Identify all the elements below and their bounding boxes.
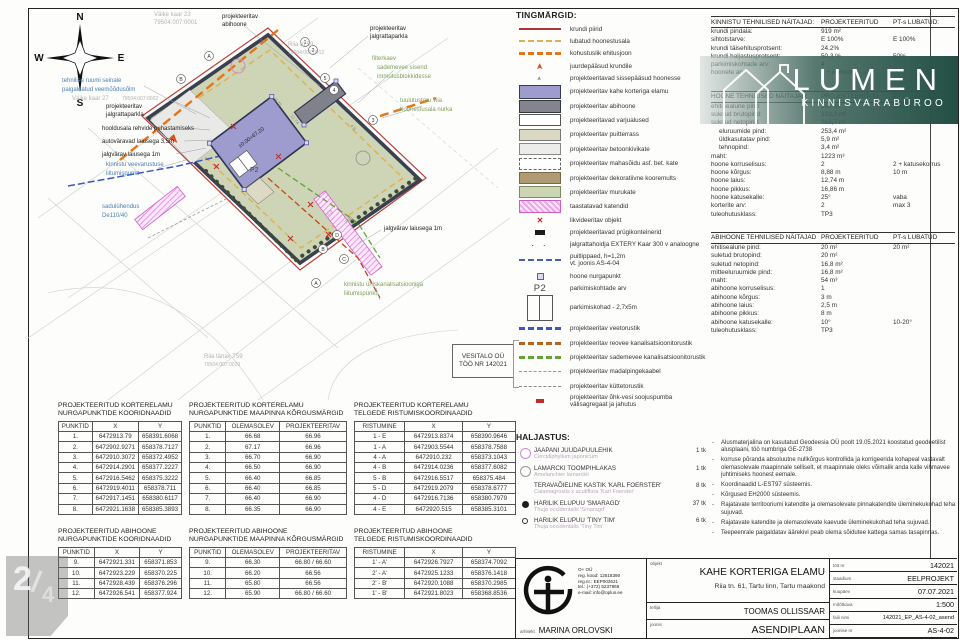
compass-icon: N E S W bbox=[34, 12, 124, 109]
table-row: maht: 1223 m³ bbox=[711, 153, 955, 161]
lumen-watermark: LUMEN KINNISVARABÜROO bbox=[700, 56, 958, 124]
callout-vent-pipe: tuulutustoru viia bbox=[400, 98, 443, 104]
legend-title: TINGMÄRGID: bbox=[516, 10, 708, 20]
legend-item: projekteeritav puitterrass bbox=[516, 128, 708, 142]
legend-item-label: lubatud hoonestusala bbox=[570, 38, 630, 45]
legend-item: projekteeritav abihoone bbox=[516, 99, 708, 113]
table-row: 5 - B6472916.5517658375.484 bbox=[355, 473, 516, 483]
legend-swatch-icon bbox=[516, 259, 564, 261]
legend-item-label: projekteeritav küttetorustik bbox=[570, 383, 644, 390]
plant-count: 1 tk bbox=[678, 447, 706, 460]
table-row: krundi täisehitusprotsent: 24.2% bbox=[711, 45, 955, 53]
table-row: 1.6472913.79658391.6068 bbox=[59, 431, 182, 441]
meta-label: staadium bbox=[833, 576, 851, 581]
callout-sewer-connection: kinnistu ühiskanalisatsiooniga bbox=[344, 282, 424, 288]
meta-value: AS-4-02 bbox=[853, 626, 954, 635]
legend-swatch-icon bbox=[516, 100, 564, 113]
meta-row: faili nimi 142021_EP_AS-4-02_asend bbox=[830, 612, 957, 625]
table-row: tuleohutusklass: TP3 bbox=[711, 211, 955, 219]
legend-swatch-icon: P2 bbox=[516, 283, 564, 294]
meta-row: mõõtkava 1:500 bbox=[830, 599, 957, 612]
table-row: suletud brutopind: 20 m² bbox=[711, 252, 955, 260]
cadastre-label: 79504:007:0002 bbox=[122, 96, 158, 102]
legend-swatch-icon bbox=[516, 240, 564, 250]
legend-swatch-icon bbox=[516, 143, 564, 155]
cadastre-label: Riia tn 59 bbox=[288, 42, 314, 48]
plant-count: 8 tk bbox=[678, 482, 706, 495]
meta-label: kuupäev bbox=[833, 589, 850, 594]
coordinate-tables: PROJEKTEERITUD KORTERELAMUNURGAPUNKTIDE … bbox=[58, 402, 516, 599]
meta-label: faili nimi bbox=[833, 615, 849, 620]
table-row: abihoone laius: 2,5 m bbox=[711, 302, 955, 310]
table-row: 1 - E6472913.8374658390.9646 bbox=[355, 431, 516, 441]
table-row: 8.6472921.1638658385.3893 bbox=[59, 504, 182, 514]
legend-item: projekteeritavad varjualused bbox=[516, 113, 708, 127]
callout-water-connection: liitumispunkt bbox=[106, 171, 139, 177]
legend-item-label: projekteeritav sademevee kanalisatsiooni… bbox=[570, 354, 705, 361]
object-name: KAHE KORTERIGA ELAMU bbox=[700, 567, 825, 578]
legend-item-label: projekteeritavad sissepääsud hoonesse bbox=[570, 75, 681, 82]
table-row: 12.65.9066.80 / 66.60 bbox=[190, 589, 347, 599]
legend-swatch-icon bbox=[516, 85, 564, 99]
table-row: abihoone katusekalle: 10° 10-20° bbox=[711, 319, 955, 327]
parking-count-label: P2 bbox=[250, 167, 259, 174]
table-row: 9.6472921.331658371.853 bbox=[59, 557, 182, 567]
object-address: Riia tn. 61, Tartu linn, Tartu maakond bbox=[715, 583, 825, 590]
table-row: 3.6472910.3072658372.4952 bbox=[59, 452, 182, 462]
table-row: tuleohutusklass: TP3 bbox=[711, 327, 955, 335]
legend-swatch-icon bbox=[516, 399, 564, 403]
legend-swatch-icon bbox=[516, 356, 564, 359]
cadastre-label: 79504:007:0029 bbox=[204, 362, 240, 368]
plant-symbol-icon bbox=[516, 465, 534, 478]
legend-swatch-icon bbox=[516, 371, 564, 372]
legend-item-label: parkimiskohad - 2,7x5m bbox=[570, 304, 637, 311]
table-row: 1' - A'6472926.7927658374.7092 bbox=[355, 557, 516, 567]
table-row: sihtotstarve: E 100% E 100% bbox=[711, 36, 955, 44]
legend-swatch-icon bbox=[516, 129, 564, 141]
cadastre-label: Väike kaar 23 bbox=[154, 12, 191, 18]
legend-swatch-icon bbox=[516, 216, 564, 225]
plant-symbol-icon bbox=[516, 482, 534, 495]
legend-item-label: jalgrattahoidja EXTERY Kaar 300 v analoo… bbox=[570, 241, 699, 248]
legend-item-label: projekteeritav reovee kanalisatsioonitor… bbox=[570, 340, 692, 347]
legend-swatch-icon bbox=[516, 230, 564, 235]
legend-item-label: projekteeritav mahasõidu asf. bet. kate bbox=[570, 160, 678, 167]
legend-item-label: puitlippaed, h=1,2mvt. joonis AS-4-04 bbox=[570, 253, 625, 267]
plant-symbol-icon bbox=[516, 447, 534, 460]
outbuilding-axis-intersections-table: PROJEKTEERITUD ABIHOONETELGEDE RISTUMISK… bbox=[354, 528, 516, 599]
legend-item: projekteeritav murukate bbox=[516, 185, 708, 199]
table-row: 7.6472917.1451658380.6117 bbox=[59, 494, 182, 504]
client-label: tellija bbox=[650, 605, 660, 610]
legend-item-label: krundi piirid bbox=[570, 26, 602, 33]
table-row: 4 - A6472910.232658373.1043 bbox=[355, 452, 516, 462]
table-row: 2.67.1766.96 bbox=[190, 442, 347, 452]
legend-item: jalgrattahoidja EXTERY Kaar 300 v analoo… bbox=[516, 239, 708, 251]
callout-water-meter: tehnilise ruumi seinale bbox=[62, 78, 122, 84]
col-allowed: PT-s LUBATUD: bbox=[893, 19, 955, 26]
legend-swatch-icon bbox=[516, 186, 564, 198]
page-counter-overlay: 2 / 4 bbox=[6, 556, 68, 636]
plant-item: JAAPANI JUUDAPUULEHIK Cercidiphyllum jap… bbox=[516, 447, 706, 460]
lumen-brand-text: LUMEN bbox=[792, 64, 946, 95]
legend-item: projekteeritav betoonkivikate bbox=[516, 142, 708, 156]
title-block-middle: objekt KAHE KORTERIGA ELAMU Riia tn. 61,… bbox=[647, 559, 830, 638]
callout-ped-gate: jalgvärav laiusega 1m bbox=[101, 152, 160, 158]
axis-label: 5 bbox=[324, 76, 327, 82]
table-row: abihoone korruselisus: 1 bbox=[711, 285, 955, 293]
col-allowed: PT-s LUBATUD bbox=[893, 234, 955, 241]
note-item: Rajatavate territooriumi katendite ja ol… bbox=[712, 502, 956, 516]
legend-item: lubatud hoonestusala bbox=[516, 35, 708, 47]
table-row: suletud netopind: 16,8 m² bbox=[711, 261, 955, 269]
plant-names: JAAPANI JUUDAPUULEHIK Cercidiphyllum jap… bbox=[534, 447, 678, 460]
legend-item-label: projekteeritav madalpingekaabel bbox=[570, 368, 661, 375]
legend-swatch-icon bbox=[516, 158, 564, 170]
title-block-meta: töö nr 142021 staadium EELPROJEKT kuupäe… bbox=[830, 559, 957, 638]
callout-water-connection: kinnistu veevarustuse bbox=[106, 162, 164, 168]
notes-list: Alusmaterjalina on kasutatud Geodeesia O… bbox=[712, 440, 956, 540]
legend-item-label: projekteeritav abihoone bbox=[570, 103, 635, 110]
company-line: e-mail: info@oplus.ee bbox=[578, 590, 623, 596]
plant-names: HARILIK ELUPUU 'TINY TIM' Thuja occident… bbox=[534, 517, 678, 530]
callout-filter-well: filterkaev bbox=[372, 56, 396, 62]
callout-filter-well: immutusblokkidesse bbox=[377, 74, 432, 80]
callout-saddle-connection: sadulühendus bbox=[102, 204, 139, 210]
legend-item: projekteeritav kahe korteriga elamu bbox=[516, 84, 708, 98]
meta-label: töö nr bbox=[833, 563, 845, 568]
meta-label: mõõtkava bbox=[833, 602, 853, 607]
legend-item-label: projekteeritavad prügikonteinerid bbox=[570, 229, 661, 236]
legend-item: projekteeritavad prügikonteinerid bbox=[516, 226, 708, 238]
callout-filter-well: sademevee sisend bbox=[377, 65, 427, 71]
legend-item-label: projekteeritav veetorustik bbox=[570, 325, 640, 332]
legend-item: parkimiskohad - 2,7x5m bbox=[516, 294, 708, 321]
legend-swatch-icon bbox=[516, 52, 564, 55]
col-projected: PROJEKTEERITUD bbox=[821, 234, 893, 241]
title-block: O+ OÜreg. kood: 12518390reg.nr.: EEP0026… bbox=[515, 558, 957, 638]
note-item: Alusmaterjalina on kasutatud Geodeesia O… bbox=[712, 440, 956, 454]
table-row: 2.6472902.9271658378.7127 bbox=[59, 442, 182, 452]
note-item: Teepeenrale paigaldatav äärekivi peab ol… bbox=[712, 530, 956, 537]
compass-w: W bbox=[34, 53, 44, 64]
meta-row: joonise nr AS-4-02 bbox=[830, 625, 957, 638]
callout-water-meter: paigaldatud veemõõdusõlm bbox=[62, 87, 135, 93]
callout-outbuilding: projekteeritav bbox=[222, 14, 258, 20]
table-row: 10.66.2066.56 bbox=[190, 568, 347, 578]
table-row: krundi pindala: 919 m² bbox=[711, 28, 955, 36]
legend-item-label: hoone nurgapunkt bbox=[570, 273, 621, 280]
meta-label: joonise nr bbox=[833, 628, 853, 633]
legend-swatch-icon bbox=[516, 386, 564, 387]
cadastre-label: Väike kaar 27 bbox=[72, 96, 109, 102]
table-row: mitteeluruumide pind: 16,8 m² bbox=[711, 269, 955, 277]
outbuilding-data-table: ABIHOONE TEHNILISED NÄITAJAD PROJEKTEERI… bbox=[711, 232, 955, 335]
legend-swatch-icon bbox=[516, 28, 564, 30]
vesitalo-name: VESITALO OÜ bbox=[453, 353, 513, 361]
table-row: 2' - A'6472925.1233658376.1418 bbox=[355, 568, 516, 578]
table-row: 9.66.3066.80 / 66.60 bbox=[190, 557, 347, 567]
callout-bike-parking: projekteeritav bbox=[370, 26, 406, 32]
note-item: Koordinaadid L-EST97 süsteemis. bbox=[712, 482, 956, 489]
legend-item: puitlippaed, h=1,2mvt. joonis AS-4-04 bbox=[516, 251, 708, 270]
table-row: 7.66.4066.90 bbox=[190, 494, 347, 504]
legend-item-label: projekteeritav dekoratiivne kooremults bbox=[570, 175, 676, 182]
meta-value: 1:500 bbox=[853, 600, 954, 609]
plant-item: HARILIK ELUPUU 'SMARAGD' Thuja occidenta… bbox=[516, 500, 706, 513]
table-row: 11.65.8066.56 bbox=[190, 578, 347, 588]
table-row: 3.66.7066.90 bbox=[190, 452, 347, 462]
architect-name: MARINA ORLOVSKI bbox=[539, 626, 613, 635]
table-row: maht: 54 m³ bbox=[711, 277, 955, 285]
table-row: 1 - A6472903.5544658378.7588 bbox=[355, 442, 516, 452]
table-row: hoone pikkus: 16,86 m bbox=[711, 186, 955, 194]
company-line: reg. kood: 12518390 bbox=[578, 573, 623, 579]
table-row: 1' - B'6472921.8023658368.8536 bbox=[355, 589, 516, 599]
meta-row: kuupäev 07.07.2021 bbox=[830, 585, 957, 598]
col-projected: PROJEKTEERITUD bbox=[821, 19, 893, 26]
plant-item: TERAVAÕIELINE KASTIK 'KARL FOERSTER' Cal… bbox=[516, 482, 706, 495]
plant-symbol-icon bbox=[516, 517, 534, 530]
plant-item: LAMARCKI TOOMPIHLAKAS Amelanchier lamarc… bbox=[516, 465, 706, 478]
architect-company-logo bbox=[520, 565, 576, 621]
table-row: eluruumide pind: 253,4 m² bbox=[711, 128, 955, 136]
legend-list: krundi piirid lubatud hoonestusala kohus… bbox=[516, 23, 708, 408]
callout-bike-parking: jalgrattaparkla bbox=[105, 112, 144, 118]
legend-item: projekteeritav reovee kanalisatsioonitor… bbox=[516, 336, 708, 350]
legend-item-label: taastatavad katendid bbox=[570, 203, 628, 210]
callout-maintenance: hooldusala rehvide puhastamiseks bbox=[102, 126, 194, 132]
meta-value: 07.07.2021 bbox=[850, 587, 954, 596]
table-row: tehnopind: 3,4 m² bbox=[711, 144, 955, 152]
legend-item-label: projekteeritav kahe korteriga elamu bbox=[570, 88, 668, 95]
site-plan: N E S W A B 1 2 5 4 3 D B C A bbox=[28, 8, 512, 400]
table-row: hoone korruselisus: 2 2 + katusekorrus bbox=[711, 161, 955, 169]
plant-count: 6 tk bbox=[678, 517, 706, 530]
meta-value: 142021 bbox=[845, 561, 954, 570]
callout-bike-parking: projekteeritav bbox=[106, 104, 142, 110]
legend-item-label: kohustuslik ehitusjoon bbox=[570, 50, 632, 57]
outbuilding-corner-coords-table: PROJEKTEERITUD ABIHOONENURGAPUNKTIDE KOO… bbox=[58, 528, 182, 599]
axis-label: 3 bbox=[372, 118, 375, 124]
table-row: abihoone kõrgus: 3 m bbox=[711, 294, 955, 302]
drawing-label: joonis bbox=[650, 622, 662, 627]
callout-car-gate: autoväravad laiusega 3,5m bbox=[102, 139, 174, 145]
table-row: 5 - D6472919.2079658378.6777 bbox=[355, 483, 516, 493]
legend-item: likvideeritav objekt bbox=[516, 214, 708, 226]
legend-item: projekteeritav sademevee kanalisatsiooni… bbox=[516, 350, 708, 364]
table-row: 5.6472916.5462658375.3222 bbox=[59, 473, 182, 483]
table-row: 10.6472923.229658370.225 bbox=[59, 568, 182, 578]
legend-item: kohustuslik ehitusjoon bbox=[516, 48, 708, 60]
vesitalo-work-number: TÖÖ NR 142021 bbox=[453, 361, 513, 369]
legend-swatch-icon bbox=[516, 172, 564, 184]
legend-item: projekteeritav dekoratiivne kooremults bbox=[516, 171, 708, 185]
table-row: hoone laius: 12,74 m bbox=[711, 177, 955, 185]
legend-item: taastatavad katendid bbox=[516, 200, 708, 214]
table-row: 11.6472928.439658376.296 bbox=[59, 578, 182, 588]
axis-label: C bbox=[342, 257, 346, 263]
plant-names: HARILIK ELUPUU 'SMARAGD' Thuja occidenta… bbox=[534, 500, 678, 513]
plant-names: LAMARCKI TOOMPIHLAKAS Amelanchier lamarc… bbox=[534, 465, 678, 478]
legend-item-label: likvideeritav objekt bbox=[570, 217, 621, 224]
axis-label: 4 bbox=[333, 88, 336, 94]
table-row: abihoone pikkus: 8 m bbox=[711, 310, 955, 318]
legend-swatch-icon bbox=[516, 61, 564, 72]
dwelling-corner-coords-table: PROJEKTEERITUD KORTERELAMUNURGAPUNKTIDE … bbox=[58, 402, 182, 515]
client-name: TOOMAS OLLISSAAR bbox=[744, 607, 825, 616]
dwelling-ground-heights-table: PROJEKTEERITUD KORTERELAMUNURGAPUNKTIDE … bbox=[189, 402, 347, 515]
title-block-company: O+ OÜreg. kood: 12518390reg.nr.: EEP0026… bbox=[516, 559, 647, 638]
vesitalo-reference-box: VESITALO OÜ TÖÖ NR 142021 bbox=[452, 344, 514, 378]
compass-n: N bbox=[76, 12, 83, 23]
outbuilding-ground-heights-table: PROJEKTEERITUD ABIHOONENURGAPUNKTIDE MAA… bbox=[189, 528, 347, 599]
legend-swatch-icon bbox=[516, 295, 564, 321]
callout-sewer-connection: liitumispunkt bbox=[344, 291, 377, 297]
legend-item-label: projekteeritav betoonkivikate bbox=[570, 146, 650, 153]
table-row: üldkasutatav pind: 5,9 m² bbox=[711, 136, 955, 144]
callout-vent-pipe: hoonestusala nurka bbox=[400, 107, 453, 113]
legend-item: projekteeritav õhk-vesi soojuspumba väli… bbox=[516, 393, 708, 407]
plant-symbol-icon bbox=[516, 500, 534, 513]
meta-row: töö nr 142021 bbox=[830, 559, 957, 572]
table-row: 4.66.5066.90 bbox=[190, 463, 347, 473]
legend-swatch-icon bbox=[516, 327, 564, 330]
compass-e: E bbox=[118, 53, 125, 64]
meta-value: 142021_EP_AS-4-02_asend bbox=[849, 615, 954, 621]
table-row: 2' - B'6472920.1088658370.2985 bbox=[355, 578, 516, 588]
table-row: 4.6472914.2901658377.2227 bbox=[59, 463, 182, 473]
page-total: 4 bbox=[42, 582, 54, 608]
table-row: 8.66.3566.90 bbox=[190, 504, 347, 514]
note-item: Rajatavate katendite ja olemasolevate ka… bbox=[712, 520, 956, 527]
legend-bracket bbox=[513, 340, 519, 388]
table-row: 4 - E6472920.515658385.3101 bbox=[355, 504, 516, 514]
legend-item: projekteeritav mahasõidu asf. bet. kate bbox=[516, 156, 708, 170]
legend-item: projekteeritav veetorustik bbox=[516, 321, 708, 335]
table-title: ABIHOONE TEHNILISED NÄITAJAD bbox=[711, 234, 821, 241]
table-row: 1.66.6866.96 bbox=[190, 431, 347, 441]
legend-item: juurdepääsud krundile bbox=[516, 60, 708, 72]
legend-swatch-icon bbox=[516, 40, 564, 42]
callout-bike-parking: jalgrattaparkla bbox=[369, 34, 408, 40]
landscaping-panel: HALJASTUS: JAAPANI JUUDAPUULEHIK Cercidi… bbox=[516, 432, 706, 535]
legend-swatch-icon bbox=[516, 342, 564, 345]
table-row: korterite arv: 2 max 3 bbox=[711, 202, 955, 210]
legend-panel: TINGMÄRGID: krundi piirid lubatud hoones… bbox=[516, 10, 708, 408]
legend-item-label: juurdepääsud krundile bbox=[570, 63, 632, 70]
drawing-name: ASENDIPLAAN bbox=[751, 624, 825, 636]
cadastre-label: 79504:007:0001 bbox=[154, 20, 198, 26]
callout-outbuilding: abihoone bbox=[222, 22, 247, 28]
note-item: korruse põranda absoluutne nullkõrgus ko… bbox=[712, 457, 956, 479]
callout-ped-gate: jalgvärav laiusega 1m bbox=[383, 226, 442, 232]
legend-item: P2 parkimiskohtade arv bbox=[516, 282, 708, 294]
table-row: 6.6472919.4011658378.711 bbox=[59, 483, 182, 493]
legend-item-label: projekteeritav puitterrass bbox=[570, 131, 639, 138]
plant-count: 1 tk bbox=[678, 465, 706, 478]
table-row: hoone katusekalle: 25° vaba bbox=[711, 194, 955, 202]
meta-row: staadium EELPROJEKT bbox=[830, 572, 957, 585]
axis-label: D bbox=[335, 233, 339, 239]
plant-item: HARILIK ELUPUU 'TINY TIM' Thuja occident… bbox=[516, 517, 706, 530]
legend-swatch-icon bbox=[516, 114, 564, 126]
plant-count: 37 tk bbox=[678, 500, 706, 513]
drawing-sheet: N E S W A B 1 2 5 4 3 D B C A bbox=[0, 0, 960, 640]
legend-swatch-icon bbox=[516, 75, 564, 82]
table-row: hoone kõrgus: 8,88 m 10 m bbox=[711, 169, 955, 177]
table-title: KINNISTU TEHNILISED NÄITAJAD: bbox=[711, 19, 821, 26]
table-row: 5.66.4066.85 bbox=[190, 473, 347, 483]
lumen-sub-text: KINNISVARABÜROO bbox=[802, 98, 947, 109]
company-contact-lines: O+ OÜreg. kood: 12518390reg.nr.: EEP0026… bbox=[578, 567, 623, 596]
object-label: objekt bbox=[650, 561, 662, 566]
meta-value: EELPROJEKT bbox=[851, 574, 954, 583]
table-row: ehitisealune pind: 20 m² 20 m² bbox=[711, 244, 955, 252]
legend-item-label: projekteeritav murukate bbox=[570, 189, 636, 196]
legend-item: krundi piirid bbox=[516, 23, 708, 35]
plant-names: TERAVAÕIELINE KASTIK 'KARL FOERSTER' Cal… bbox=[534, 482, 678, 495]
legend-swatch-icon bbox=[516, 273, 564, 280]
cadastre-label: Riia tänav T59 bbox=[204, 354, 243, 360]
legend-item: hoone nurgapunkt bbox=[516, 270, 708, 282]
table-row: 12.6472926.541658377.924 bbox=[59, 589, 182, 599]
dwelling-axis-intersections-table: PROJEKTEERITUD KORTERELAMUTELGEDE RISTUM… bbox=[354, 402, 516, 515]
note-item: Kõrgused EH2000 süsteemis. bbox=[712, 492, 956, 499]
legend-item-label: projekteeritav õhk-vesi soojuspumba väli… bbox=[570, 394, 708, 408]
table-row: 4 - D6472916.7136658380.7979 bbox=[355, 494, 516, 504]
legend-item-label: projekteeritavad varjualused bbox=[570, 117, 649, 124]
architect-label: arhitekt bbox=[520, 629, 535, 634]
cadastre-label: 79504:007:0012 bbox=[288, 50, 324, 56]
legend-item: projekteeritavad sissepääsud hoonesse bbox=[516, 72, 708, 84]
table-row: 6.66.4066.85 bbox=[190, 483, 347, 493]
landscaping-title: HALJASTUS: bbox=[516, 432, 706, 442]
callout-saddle-connection: De110/40 bbox=[102, 213, 128, 219]
table-row: 4 - B6472914.0236658377.6082 bbox=[355, 463, 516, 473]
legend-item: projekteeritav madalpingekaabel bbox=[516, 365, 708, 379]
legend-item-label: parkimiskohtade arv bbox=[570, 285, 626, 292]
legend-item: projekteeritav küttetorustik bbox=[516, 379, 708, 393]
legend-swatch-icon bbox=[516, 200, 564, 213]
